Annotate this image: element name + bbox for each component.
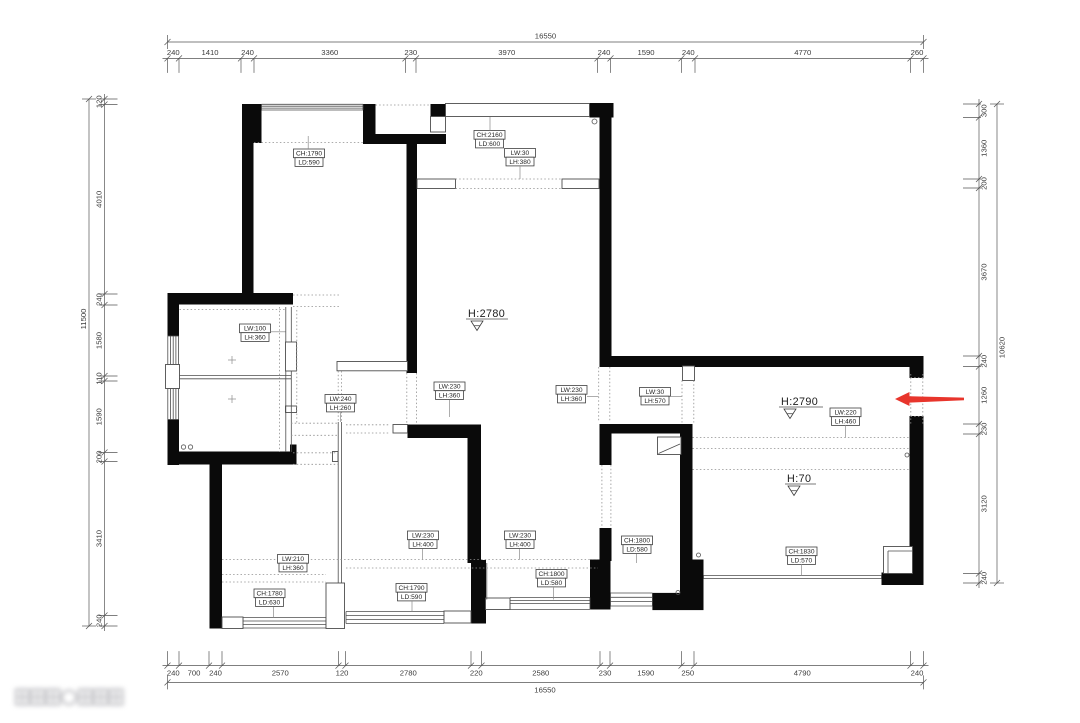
svg-text:230: 230: [404, 48, 417, 57]
svg-text:LW:230: LW:230: [560, 387, 582, 394]
svg-text:1590: 1590: [95, 408, 104, 425]
svg-text:LH:400: LH:400: [412, 541, 434, 548]
svg-text:LW:230: LW:230: [509, 533, 531, 540]
svg-text:1260: 1260: [980, 387, 989, 404]
svg-text:240: 240: [95, 614, 104, 627]
svg-text:240: 240: [241, 48, 254, 57]
svg-text:LH:360: LH:360: [439, 392, 461, 399]
svg-text:LH:400: LH:400: [509, 541, 531, 548]
svg-text:240: 240: [598, 48, 611, 57]
svg-text:4010: 4010: [95, 191, 104, 208]
svg-text:1410: 1410: [201, 48, 218, 57]
svg-text:LD:630: LD:630: [259, 599, 281, 606]
svg-text:CH:1790: CH:1790: [398, 585, 424, 592]
svg-text:250: 250: [681, 669, 694, 678]
svg-text:240: 240: [911, 669, 924, 678]
svg-text:LD:570: LD:570: [791, 557, 813, 564]
svg-text:240: 240: [95, 293, 104, 306]
svg-text:240: 240: [980, 355, 989, 368]
svg-text:LD:580: LD:580: [541, 580, 563, 587]
svg-text:700: 700: [188, 669, 201, 678]
svg-text:LW:240: LW:240: [329, 396, 351, 403]
svg-text:200: 200: [980, 177, 989, 190]
svg-text:CH:2160: CH:2160: [476, 132, 502, 139]
svg-text:H:2790: H:2790: [781, 396, 818, 408]
svg-text:240: 240: [682, 48, 695, 57]
svg-text:LH:380: LH:380: [509, 159, 531, 166]
svg-text:LW:210: LW:210: [282, 556, 304, 563]
svg-text:LW:230: LW:230: [412, 533, 434, 540]
svg-text:120: 120: [95, 95, 104, 108]
svg-text:240: 240: [980, 572, 989, 585]
svg-text:LH:360: LH:360: [244, 334, 266, 341]
svg-text:H:70: H:70: [787, 473, 811, 485]
svg-text:LD:590: LD:590: [401, 594, 423, 601]
svg-text:3670: 3670: [980, 263, 989, 280]
svg-text:3360: 3360: [321, 48, 338, 57]
svg-text:3970: 3970: [498, 48, 515, 57]
svg-text:2580: 2580: [532, 669, 549, 678]
svg-text:2780: 2780: [400, 669, 417, 678]
svg-text:10620: 10620: [998, 337, 1007, 358]
svg-text:1580: 1580: [95, 332, 104, 349]
svg-text:110: 110: [95, 372, 104, 384]
svg-text:LH:260: LH:260: [330, 405, 352, 412]
svg-text:230: 230: [599, 669, 612, 678]
svg-text:11500: 11500: [79, 309, 88, 330]
svg-text:3120: 3120: [980, 495, 989, 512]
svg-text:4770: 4770: [794, 48, 811, 57]
svg-text:LW:220: LW:220: [834, 410, 856, 417]
svg-text:1360: 1360: [980, 140, 989, 157]
svg-text:CH:1790: CH:1790: [296, 151, 322, 158]
svg-text:1590: 1590: [637, 669, 654, 678]
svg-text:LW:230: LW:230: [438, 384, 460, 391]
svg-text:3410: 3410: [95, 530, 104, 547]
svg-text:1590: 1590: [637, 48, 654, 57]
svg-text:240: 240: [167, 48, 180, 57]
svg-text:LH:460: LH:460: [835, 418, 857, 425]
svg-text:16550: 16550: [534, 686, 555, 695]
svg-text:LW:30: LW:30: [646, 389, 665, 396]
svg-text:220: 220: [470, 669, 483, 678]
svg-text:240: 240: [167, 669, 180, 678]
svg-text:260: 260: [911, 48, 924, 57]
svg-text:LD:590: LD:590: [298, 159, 320, 166]
svg-text:LH:360: LH:360: [561, 396, 583, 403]
svg-text:LH:360: LH:360: [282, 565, 304, 572]
svg-text:LW:30: LW:30: [511, 150, 530, 157]
svg-text:H:2780: H:2780: [468, 308, 505, 320]
svg-text:LH:570: LH:570: [644, 398, 666, 405]
svg-text:CH:1830: CH:1830: [788, 549, 814, 556]
svg-text:4790: 4790: [794, 669, 811, 678]
svg-text:230: 230: [980, 423, 989, 436]
svg-text:LW:100: LW:100: [244, 326, 266, 333]
svg-text:240: 240: [209, 669, 222, 678]
svg-text:LD:580: LD:580: [626, 546, 648, 553]
svg-text:2570: 2570: [272, 669, 289, 678]
svg-text:120: 120: [336, 669, 349, 678]
svg-text:16550: 16550: [535, 32, 556, 41]
svg-text:300: 300: [980, 104, 989, 117]
svg-text:LD:600: LD:600: [479, 141, 501, 148]
svg-text:200: 200: [95, 451, 104, 464]
svg-text:CH:1800: CH:1800: [624, 538, 650, 545]
svg-text:CH:1800: CH:1800: [538, 571, 564, 578]
svg-text:CH:1780: CH:1780: [256, 591, 282, 598]
